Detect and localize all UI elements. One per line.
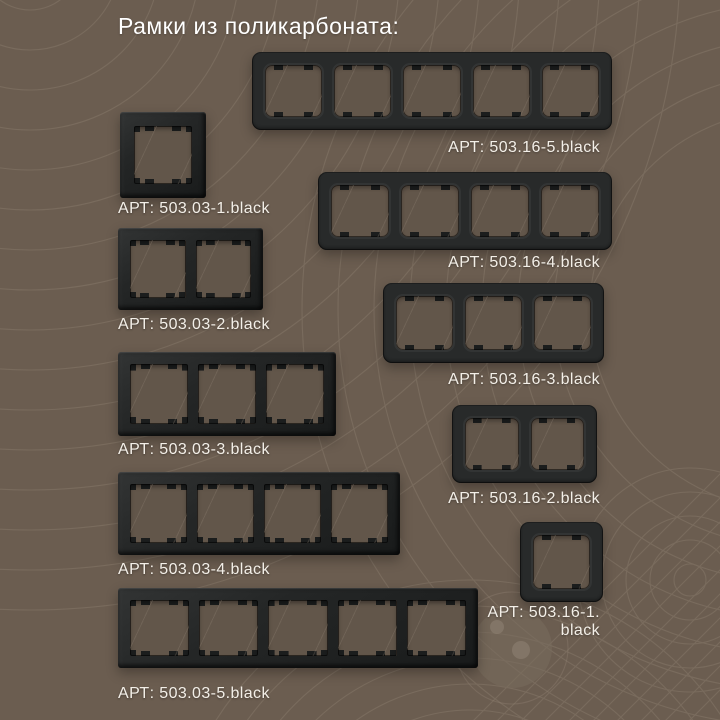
frame-503-16-4	[318, 172, 612, 250]
art-label-503-03-3: АРТ: 503.03-3.black	[118, 441, 270, 459]
frame-window	[197, 484, 254, 543]
frame-window	[465, 296, 522, 350]
frame-window	[541, 185, 599, 237]
frame-window	[471, 185, 529, 237]
art-label-503-03-4: АРТ: 503.03-4.black	[118, 561, 270, 579]
frame-window	[196, 240, 252, 298]
frame-window	[199, 600, 258, 656]
frame-window	[403, 65, 460, 117]
art-label-503-03-1: АРТ: 503.03-1.black	[118, 200, 270, 218]
page-title: Рамки из поликарбоната:	[118, 13, 399, 40]
frame-window	[331, 484, 388, 543]
frame-503-16-1	[520, 522, 603, 602]
frame-window	[134, 126, 192, 184]
frame-window	[531, 418, 585, 470]
frame-window	[473, 65, 530, 117]
catalog-page: Рамки из поликарбоната: АРТ: 503.03-1.bl…	[0, 0, 720, 720]
art-label-503-03-5: АРТ: 503.03-5.black	[118, 685, 270, 703]
frame-503-16-3	[383, 283, 604, 363]
frame-503-03-3	[118, 352, 336, 436]
frame-window	[130, 364, 188, 424]
art-label-503-16-3: АРТ: 503.16-3.black	[448, 371, 600, 389]
frame-503-16-5	[252, 52, 612, 130]
art-label-503-16-1: АРТ: 503.16-1. black	[488, 604, 601, 641]
frame-window	[407, 600, 466, 656]
frame-503-03-1	[120, 112, 206, 198]
frame-window	[338, 600, 397, 656]
frame-503-16-2	[452, 405, 597, 483]
art-label-503-16-2: АРТ: 503.16-2.black	[448, 490, 600, 508]
frame-window	[268, 600, 327, 656]
art-label-503-16-5: АРТ: 503.16-5.black	[448, 139, 600, 157]
frame-503-03-4	[118, 472, 400, 555]
frame-window	[534, 296, 591, 350]
frame-window	[331, 185, 389, 237]
art-label-503-03-2: АРТ: 503.03-2.black	[118, 316, 270, 334]
frame-window	[198, 364, 256, 424]
frame-window	[130, 600, 189, 656]
frame-window	[130, 240, 186, 298]
frame-window	[542, 65, 599, 117]
frame-window	[130, 484, 187, 543]
frame-window	[264, 484, 321, 543]
frame-window	[396, 296, 453, 350]
frame-window	[334, 65, 391, 117]
frame-window	[266, 364, 324, 424]
art-label-503-16-4: АРТ: 503.16-4.black	[448, 254, 600, 272]
frame-window	[401, 185, 459, 237]
frame-window	[465, 418, 519, 470]
frame-503-03-2	[118, 228, 263, 310]
frame-window	[265, 65, 322, 117]
frame-503-03-5	[118, 588, 478, 668]
frame-window	[533, 535, 590, 589]
